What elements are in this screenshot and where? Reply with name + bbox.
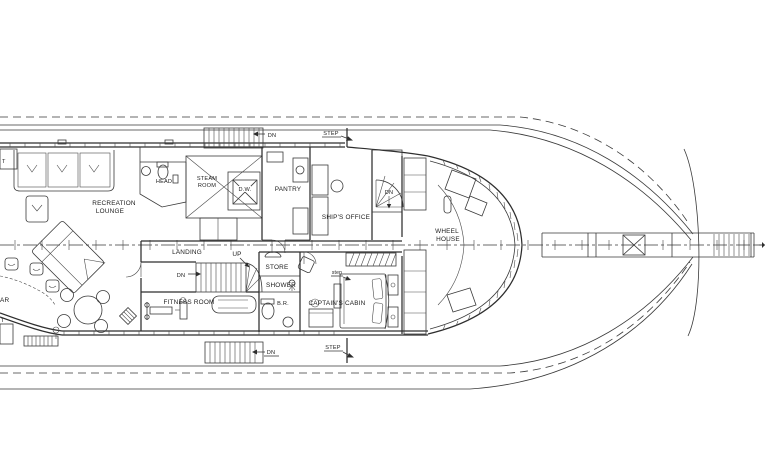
label-recreation-lounge-2: LOUNGE [96,208,124,215]
label-store: STORE [266,264,289,271]
head-room [140,147,186,207]
label-bathroom: B.R. [277,301,289,307]
binnacle [444,196,451,213]
speaker-icon [173,175,178,183]
label-recreation-lounge: RECREATION [92,200,136,207]
label-wheel-house: WHEEL [435,228,459,235]
label-bar-cut: AR [0,297,9,304]
label-steam-room: STEAM [197,176,217,182]
label-steam-room-2: ROOM [198,183,216,189]
armchair [26,196,48,222]
chaise-lounge [31,220,105,294]
aft-lockers-top [404,158,426,210]
office-chair [331,180,343,192]
toilet [262,303,274,319]
label-step-small: step [332,270,342,276]
deck-mat [24,336,58,346]
spiral-stairs [372,150,403,212]
label-step-bottom: STEP [325,345,340,351]
label-t-cut-bottom: T [1,318,5,324]
center-stairs [188,258,262,292]
label-t-cut-top: T [2,159,6,165]
label-landing: LANDING [172,249,202,256]
bench-press [150,307,172,314]
hatched-box [120,308,137,325]
label-captains-cabin: CAPTAIN'S CABIN [308,300,365,307]
sink [142,167,151,176]
label-up: UP [232,251,241,258]
pantry-sink [296,166,304,174]
label-dn-spiral: DN [385,190,393,196]
cut-cabinet [0,324,13,344]
deckhouse-walls [0,128,522,363]
dresser [309,309,333,327]
steam-room [173,156,262,240]
label-dn-bottom: DN [267,350,275,356]
label-fitness-room: FITNESS ROOM [163,299,214,306]
label-step-top: STEP [323,131,338,137]
counter [293,158,308,182]
recreation-lounge [0,149,114,346]
label-wheel-house-2: HOUSE [436,236,460,243]
sofa [14,150,114,191]
ships-office [312,150,372,240]
captains-cabin [298,252,398,329]
label-dn-top: DN [268,133,276,139]
pantry-room [262,147,310,253]
label-head: HEAD [156,179,172,185]
sink [283,317,293,327]
label-dumbwaiter: D.W. [239,187,252,193]
label-ships-office: SHIP'S OFFICE [322,214,370,221]
lockers [200,218,237,240]
office-desk [312,165,328,195]
label-dn-mid: DN [177,273,185,279]
deck-plan-canvas: RECREATION LOUNGE HEAD STEAM ROOM D.W. P… [0,0,765,450]
helm-seat [447,288,476,312]
treadmill [212,296,256,313]
deck-plan-drawing: RECREATION LOUNGE HEAD STEAM ROOM D.W. P… [0,0,765,450]
label-shower: SHOWER [266,282,296,289]
label-pantry: PANTRY [275,186,302,193]
helm-console [445,170,476,198]
